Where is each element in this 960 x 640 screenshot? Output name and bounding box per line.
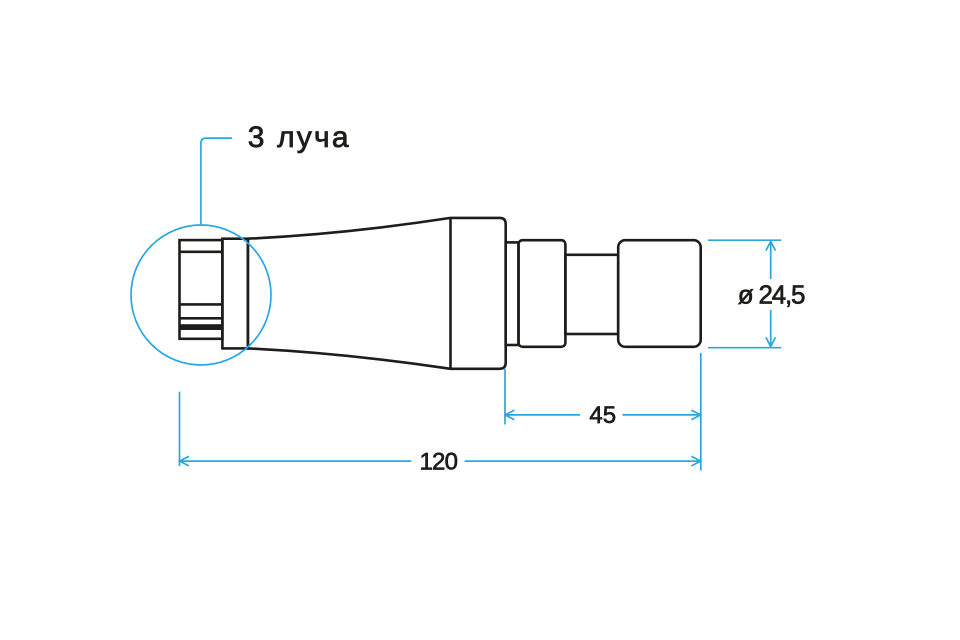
svg-text:120: 120 bbox=[419, 449, 457, 476]
svg-text:ø 24,5: ø 24,5 bbox=[738, 279, 805, 309]
svg-text:45: 45 bbox=[589, 402, 616, 429]
svg-text:3 луча: 3 луча bbox=[248, 121, 351, 154]
